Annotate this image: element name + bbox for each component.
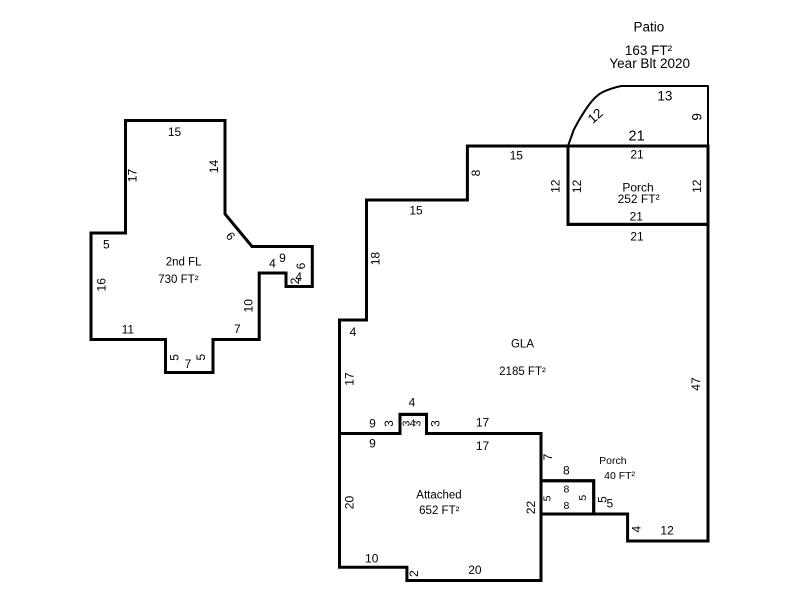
svg-text:9: 9 (279, 251, 286, 265)
svg-text:21: 21 (630, 230, 644, 244)
svg-text:6: 6 (294, 262, 308, 269)
svg-text:4: 4 (630, 525, 644, 532)
svg-text:5: 5 (103, 238, 110, 252)
svg-text:252 FT²: 252 FT² (618, 192, 660, 206)
svg-text:Porch: Porch (599, 455, 627, 467)
svg-text:20: 20 (343, 496, 357, 510)
svg-text:40 FT²: 40 FT² (604, 470, 635, 482)
svg-text:7: 7 (234, 322, 241, 336)
svg-text:47: 47 (689, 377, 703, 391)
svg-text:GLA: GLA (511, 339, 534, 351)
svg-text:15: 15 (510, 149, 524, 163)
svg-text:3: 3 (429, 420, 443, 427)
svg-text:8: 8 (563, 484, 569, 496)
svg-text:17: 17 (343, 372, 357, 386)
svg-text:21: 21 (629, 129, 645, 145)
svg-text:5: 5 (168, 354, 182, 361)
svg-text:7: 7 (185, 357, 192, 371)
svg-text:17: 17 (126, 169, 140, 183)
svg-text:12: 12 (690, 179, 704, 193)
svg-text:12: 12 (570, 179, 584, 193)
svg-text:2185 FT²: 2185 FT² (499, 366, 546, 378)
svg-text:4: 4 (409, 396, 416, 410)
svg-text:9: 9 (369, 437, 376, 451)
svg-text:8: 8 (563, 500, 569, 512)
svg-text:15: 15 (409, 204, 423, 218)
svg-text:5: 5 (194, 354, 208, 361)
svg-text:12: 12 (549, 179, 563, 193)
svg-text:8: 8 (563, 463, 570, 477)
svg-text:21: 21 (630, 210, 644, 224)
svg-text:5: 5 (596, 496, 610, 503)
svg-text:9: 9 (690, 113, 705, 121)
svg-text:10: 10 (241, 299, 255, 313)
svg-text:15: 15 (168, 125, 182, 139)
svg-text:5: 5 (542, 495, 554, 501)
svg-text:8: 8 (469, 169, 483, 176)
svg-text:20: 20 (468, 563, 482, 577)
svg-text:2: 2 (288, 277, 302, 284)
svg-text:3: 3 (382, 420, 396, 427)
svg-text:21: 21 (630, 148, 644, 162)
svg-text:2nd FL: 2nd FL (166, 257, 202, 269)
svg-text:4: 4 (350, 325, 357, 339)
svg-text:18: 18 (369, 252, 383, 266)
svg-text:13: 13 (657, 89, 672, 104)
svg-text:Patio: Patio (634, 20, 665, 35)
svg-text:Year Blt 2020: Year Blt 2020 (609, 56, 690, 71)
svg-text:2: 2 (407, 570, 421, 577)
svg-text:12: 12 (660, 523, 674, 537)
svg-text:10: 10 (365, 551, 379, 565)
svg-text:4: 4 (269, 257, 276, 271)
svg-text:14: 14 (207, 160, 221, 174)
svg-text:17: 17 (476, 416, 490, 430)
svg-text:730 FT²: 730 FT² (158, 274, 198, 286)
svg-text:17: 17 (476, 439, 490, 453)
svg-text:7: 7 (541, 453, 555, 460)
svg-text:9: 9 (369, 417, 376, 431)
svg-text:11: 11 (122, 322, 135, 336)
svg-text:3: 3 (412, 420, 424, 426)
svg-text:652 FT²: 652 FT² (419, 505, 459, 517)
svg-text:5: 5 (577, 495, 589, 501)
svg-text:16: 16 (94, 278, 108, 292)
svg-text:Attached: Attached (416, 490, 461, 502)
svg-text:22: 22 (524, 501, 538, 515)
